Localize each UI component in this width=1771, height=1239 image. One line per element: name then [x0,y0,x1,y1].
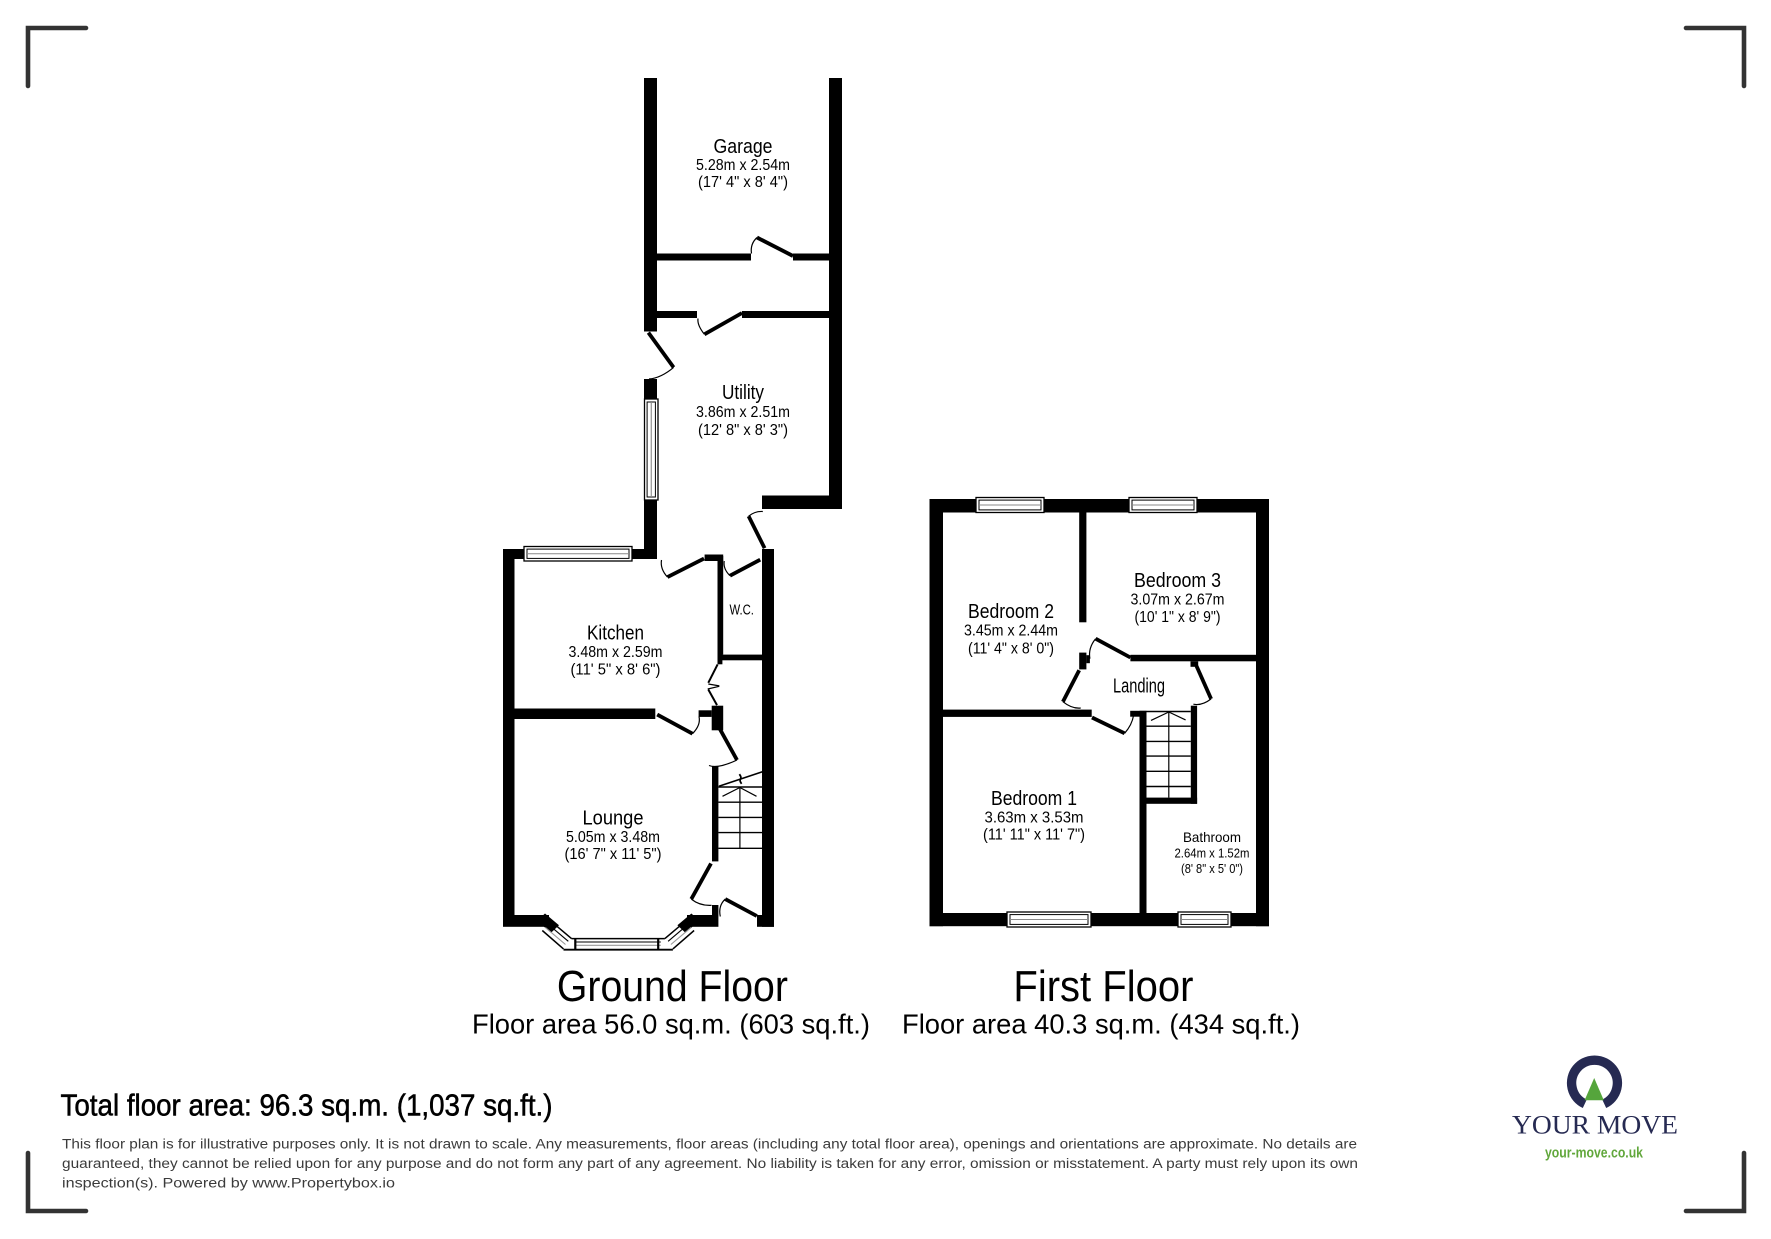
svg-text:W.C.: W.C. [729,602,754,618]
svg-text:inspection(s). Powered by www.: inspection(s). Powered by www.Propertybo… [62,1176,395,1191]
svg-text:(11' 5" x 8' 6"): (11' 5" x 8' 6") [571,662,661,679]
svg-text:Bedroom 2: Bedroom 2 [968,601,1054,623]
svg-text:Lounge: Lounge [583,808,644,830]
svg-text:3.86m x 2.51m: 3.86m x 2.51m [696,404,790,421]
svg-text:Bedroom 1: Bedroom 1 [991,788,1077,810]
svg-text:5.05m x 3.48m: 5.05m x 3.48m [566,829,660,846]
svg-text:Floor area 40.3 sq.m. (434 sq.: Floor area 40.3 sq.m. (434 sq.ft.) [902,1009,1300,1040]
svg-text:Utility: Utility [722,382,764,404]
svg-text:Garage: Garage [714,136,773,158]
svg-text:3.07m x 2.67m: 3.07m x 2.67m [1131,591,1225,608]
svg-text:5.28m x 2.54m: 5.28m x 2.54m [696,157,790,174]
svg-text:(11' 11" x 11' 7"): (11' 11" x 11' 7") [983,827,1085,844]
svg-text:Ground Floor: Ground Floor [557,963,788,1011]
svg-text:3.45m x 2.44m: 3.45m x 2.44m [964,623,1058,640]
svg-text:(17' 4" x 8' 4"): (17' 4" x 8' 4") [698,174,788,191]
svg-text:2.64m x 1.52m: 2.64m x 1.52m [1175,847,1250,861]
svg-text:Bathroom: Bathroom [1183,829,1241,845]
svg-text:Total floor area: 96.3 sq.m. (: Total floor area: 96.3 sq.m. (1,037 sq.f… [61,1087,553,1122]
svg-text:(8' 8" x 5' 0"): (8' 8" x 5' 0") [1181,862,1243,876]
svg-text:Floor area 56.0 sq.m. (603 sq.: Floor area 56.0 sq.m. (603 sq.ft.) [472,1009,870,1040]
svg-text:3.63m x 3.53m: 3.63m x 3.53m [985,809,1084,826]
svg-text:your-move.co.uk: your-move.co.uk [1545,1144,1644,1161]
svg-text:(10' 1" x 8' 9"): (10' 1" x 8' 9") [1135,609,1221,626]
svg-text:This floor plan is for illustr: This floor plan is for illustrative purp… [62,1136,1357,1151]
svg-text:YOUR MOVE: YOUR MOVE [1512,1111,1678,1140]
svg-text:Landing: Landing [1113,676,1165,698]
svg-text:(16' 7" x 11' 5"): (16' 7" x 11' 5") [565,846,662,863]
svg-text:First Floor: First Floor [1013,963,1193,1011]
svg-text:(11' 4" x 8' 0"): (11' 4" x 8' 0") [968,641,1054,658]
svg-text:Bedroom 3: Bedroom 3 [1134,570,1221,592]
svg-text:3.48m x 2.59m: 3.48m x 2.59m [569,644,663,661]
svg-text:guaranteed, they cannot be rel: guaranteed, they cannot be relied upon f… [62,1156,1358,1171]
svg-text:Kitchen: Kitchen [587,622,644,644]
svg-text:(12' 8" x 8' 3"): (12' 8" x 8' 3") [698,422,788,439]
